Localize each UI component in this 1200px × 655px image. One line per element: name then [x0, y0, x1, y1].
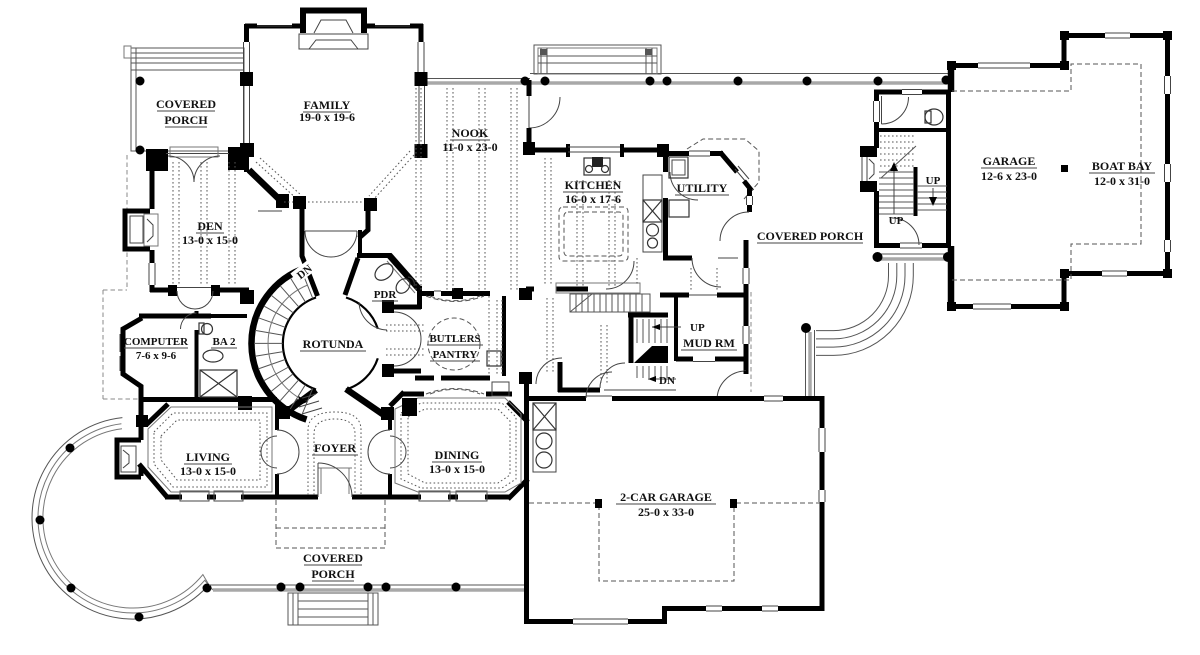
svg-text:DINING: DINING	[435, 448, 480, 462]
svg-text:7-6 x 9-6: 7-6 x 9-6	[136, 350, 177, 362]
svg-text:11-0 x 23-0: 11-0 x 23-0	[442, 140, 497, 154]
svg-text:12-0 x 31-0: 12-0 x 31-0	[1094, 174, 1150, 188]
svg-text:UP: UP	[889, 215, 904, 227]
svg-text:PDR: PDR	[374, 289, 398, 301]
svg-text:GARAGE: GARAGE	[983, 154, 1036, 168]
svg-text:UP: UP	[926, 175, 941, 187]
svg-text:DN: DN	[659, 375, 675, 387]
svg-text:LIVING: LIVING	[186, 450, 230, 464]
svg-text:NOOK: NOOK	[452, 126, 489, 140]
svg-text:DEN: DEN	[197, 219, 223, 233]
svg-text:COMPUTER: COMPUTER	[124, 336, 189, 348]
svg-text:12-6 x 23-0: 12-6 x 23-0	[981, 169, 1037, 183]
svg-text:UP: UP	[690, 322, 705, 334]
svg-text:16-0 x 17-6: 16-0 x 17-6	[565, 192, 621, 206]
svg-text:COVERED: COVERED	[156, 97, 216, 111]
svg-text:25-0 x 33-0: 25-0 x 33-0	[638, 505, 694, 519]
svg-text:BOAT BAY: BOAT BAY	[1092, 159, 1152, 173]
svg-text:COVERED: COVERED	[303, 551, 363, 565]
svg-text:BA 2: BA 2	[213, 336, 236, 348]
svg-text:PORCH: PORCH	[311, 567, 355, 581]
svg-text:COVERED PORCH: COVERED PORCH	[757, 229, 864, 243]
svg-text:MUD RM: MUD RM	[683, 336, 735, 350]
svg-text:UTILITY: UTILITY	[677, 181, 728, 195]
svg-text:2-CAR GARAGE: 2-CAR GARAGE	[620, 490, 712, 504]
svg-text:ROTUNDA: ROTUNDA	[303, 337, 364, 351]
svg-text:13-0 x 15-0: 13-0 x 15-0	[182, 233, 238, 247]
svg-text:PORCH: PORCH	[164, 113, 208, 127]
svg-text:KITCHEN: KITCHEN	[565, 178, 622, 192]
svg-text:FOYER: FOYER	[314, 441, 356, 455]
svg-text:19-0 x 19-6: 19-0 x 19-6	[299, 110, 355, 124]
svg-text:BUTLERS: BUTLERS	[429, 333, 480, 345]
svg-text:PANTRY: PANTRY	[433, 349, 478, 361]
svg-text:13-0 x 15-0: 13-0 x 15-0	[180, 464, 236, 478]
svg-text:13-0 x 15-0: 13-0 x 15-0	[429, 462, 485, 476]
